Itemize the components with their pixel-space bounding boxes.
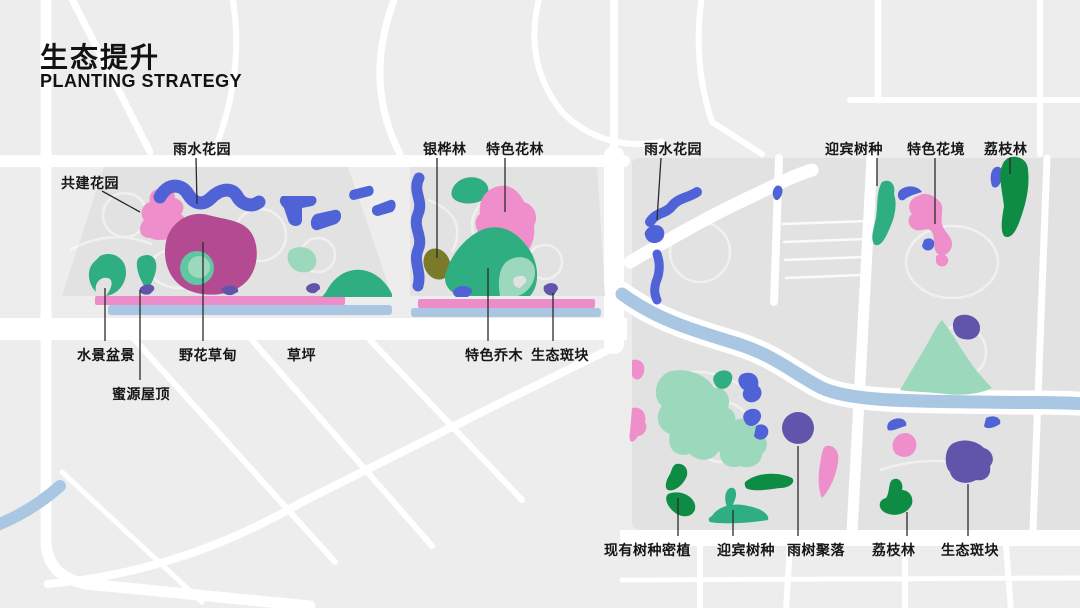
wildflower-meadow-blob [165,214,257,295]
label-silver-oak-forest: 银桦林 [423,139,467,159]
label-special-flower-forest: 特色花林 [486,139,544,159]
label-rain-garden-left: 雨水花园 [173,139,231,159]
label-existing-trees-dense: 现有树种密植 [604,540,691,560]
label-lychee-forest-top: 荔枝林 [984,139,1028,159]
page-title-en: PLANTING STRATEGY [40,71,242,92]
label-welcome-trees-bottom: 迎宾树种 [717,540,775,560]
flower-strip [418,299,595,308]
planting-strategy-slide: 生态提升 PLANTING STRATEGY 雨水花园 共建花园 水景盆景 野花… [0,0,1080,608]
label-wildflower-meadow: 野花草甸 [179,345,237,365]
rain-garden-blob [655,254,660,300]
label-eco-patch-middle: 生态斑块 [531,345,589,365]
label-lawn: 草坪 [287,345,316,365]
water-strip [108,305,392,315]
label-lychee-forest-bottom: 荔枝林 [872,540,916,560]
label-special-trees: 特色乔木 [465,345,523,365]
label-welcome-trees-top: 迎宾树种 [825,139,883,159]
label-water-feature-bonsai: 水景盆景 [77,345,135,365]
label-eco-patch-right: 生态斑块 [941,540,999,560]
label-rain-tree-cluster: 雨树聚落 [787,540,845,560]
label-rain-garden-right: 雨水花园 [644,139,702,159]
label-honey-source-roof: 蜜源屋顶 [112,384,170,404]
edge-rain-blob [416,178,419,286]
flower-strip [95,296,345,305]
water-strip [411,308,601,317]
meadow-pond [188,256,210,278]
label-special-flower-border: 特色花境 [907,139,965,159]
label-co-built-garden: 共建花园 [61,173,119,193]
rain-tree-cluster-blob [782,412,814,444]
page-title-zh: 生态提升 [40,36,160,76]
